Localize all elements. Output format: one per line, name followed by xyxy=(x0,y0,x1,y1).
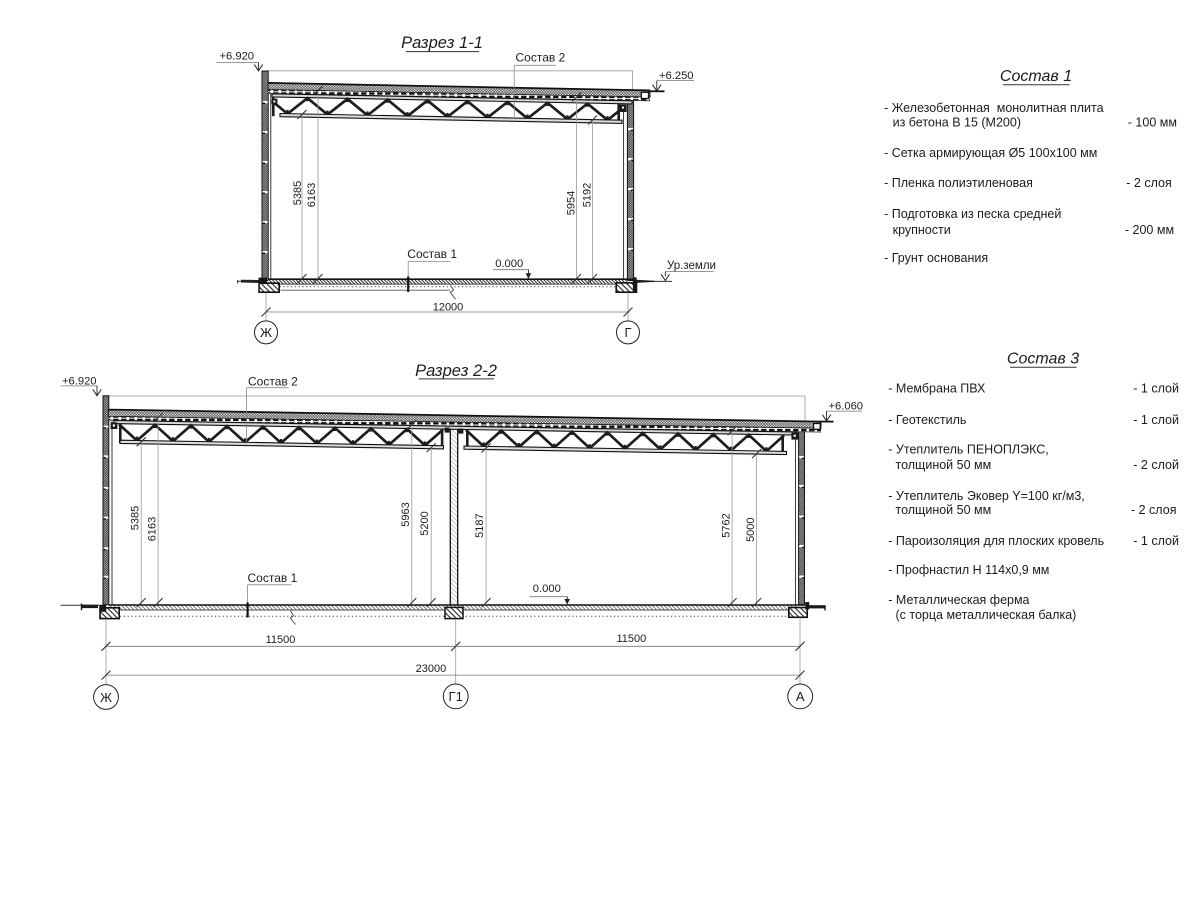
svg-text:Состав 2: Состав 2 xyxy=(248,374,298,388)
svg-text:5385: 5385 xyxy=(292,181,304,205)
svg-text:11500: 11500 xyxy=(617,633,647,645)
svg-text:- Железобетонная монолитная п: - Железобетонная монолитная плита xyxy=(884,101,1103,115)
svg-text:крупности: крупности xyxy=(893,223,951,237)
svg-text:Г: Г xyxy=(624,325,631,340)
svg-text:23000: 23000 xyxy=(416,663,447,675)
svg-text:0.000: 0.000 xyxy=(533,583,561,595)
svg-text:- Мембрана ПВХ: - Мембрана ПВХ xyxy=(888,382,986,396)
svg-text:- Грунт основания: - Грунт основания xyxy=(884,251,988,265)
svg-text:5963: 5963 xyxy=(400,502,412,526)
svg-text:5000: 5000 xyxy=(745,517,757,541)
svg-text:- Утеплитель ПЕНОПЛЭКС,: - Утеплитель ПЕНОПЛЭКС, xyxy=(888,443,1048,457)
svg-text:- 1 слой: - 1 слой xyxy=(1133,382,1179,396)
svg-text:толщиной 50 мм: толщиной 50 мм xyxy=(896,458,992,472)
svg-text:Состав 1: Состав 1 xyxy=(248,571,298,585)
svg-text:Состав 2: Состав 2 xyxy=(516,51,566,65)
svg-text:- Геотекстиль: - Геотекстиль xyxy=(888,413,966,427)
svg-text:Ж: Ж xyxy=(260,325,272,340)
svg-text:- 1 слой: - 1 слой xyxy=(1133,413,1179,427)
svg-text:А: А xyxy=(796,689,805,704)
svg-text:12000: 12000 xyxy=(433,302,464,314)
svg-text:+6.250: +6.250 xyxy=(659,70,694,82)
svg-text:- Металлическая ферма: - Металлическая ферма xyxy=(888,593,1029,607)
svg-text:5187: 5187 xyxy=(474,513,486,537)
svg-text:толщиной 50 мм: толщиной 50 мм xyxy=(896,503,992,517)
svg-text:5192: 5192 xyxy=(582,183,594,207)
svg-text:- Утеплитель Эковер Y=100 кг/м: - Утеплитель Эковер Y=100 кг/м3, xyxy=(888,489,1084,503)
svg-text:+6.920: +6.920 xyxy=(220,50,255,62)
svg-text:- Пленка полиэтиленовая: - Пленка полиэтиленовая xyxy=(884,176,1033,190)
svg-text:6163: 6163 xyxy=(146,517,158,541)
svg-text:11500: 11500 xyxy=(266,634,296,646)
svg-text:Разрез 2-2: Разрез 2-2 xyxy=(415,362,497,380)
svg-text:(с торца металлическая балка): (с торца металлическая балка) xyxy=(896,608,1077,622)
svg-text:5385: 5385 xyxy=(130,506,142,530)
svg-text:- Сетка армирующая Ø5 100х100: - Сетка армирующая Ø5 100х100 мм xyxy=(884,146,1097,160)
svg-text:6163: 6163 xyxy=(306,183,318,207)
svg-text:из бетона В 15 (М200): из бетона В 15 (М200) xyxy=(893,115,1021,129)
svg-text:- 200 мм: - 200 мм xyxy=(1125,223,1174,237)
svg-text:- Пароизоляция для плоских кро: - Пароизоляция для плоских кровель xyxy=(888,534,1104,548)
svg-text:5954: 5954 xyxy=(565,191,577,215)
svg-text:Состав 3: Состав 3 xyxy=(1007,351,1079,368)
svg-text:5200: 5200 xyxy=(419,511,431,535)
svg-text:Состав 1: Состав 1 xyxy=(1000,68,1072,85)
svg-text:Ж: Ж xyxy=(100,690,112,705)
svg-text:- 2 слоя: - 2 слоя xyxy=(1126,176,1171,190)
svg-text:- Профнастил Н 114х0,9 мм: - Профнастил Н 114х0,9 мм xyxy=(888,563,1049,577)
svg-text:Состав 1: Состав 1 xyxy=(407,247,457,261)
svg-text:- 2 слой: - 2 слой xyxy=(1133,458,1179,472)
svg-text:- 100 мм: - 100 мм xyxy=(1128,115,1177,129)
svg-text:Разрез 1-1: Разрез 1-1 xyxy=(401,34,483,52)
svg-text:Ур.земли: Ур.земли xyxy=(667,260,716,272)
svg-text:- Подготовка из песка средней: - Подготовка из песка средней xyxy=(884,207,1061,221)
svg-text:Г1: Г1 xyxy=(449,689,463,704)
svg-text:- 1 слой: - 1 слой xyxy=(1133,534,1179,548)
svg-text:- 2 слоя: - 2 слоя xyxy=(1131,503,1176,517)
svg-text:+6.060: +6.060 xyxy=(829,400,864,412)
svg-text:0.000: 0.000 xyxy=(495,258,523,270)
svg-text:5762: 5762 xyxy=(721,513,733,537)
